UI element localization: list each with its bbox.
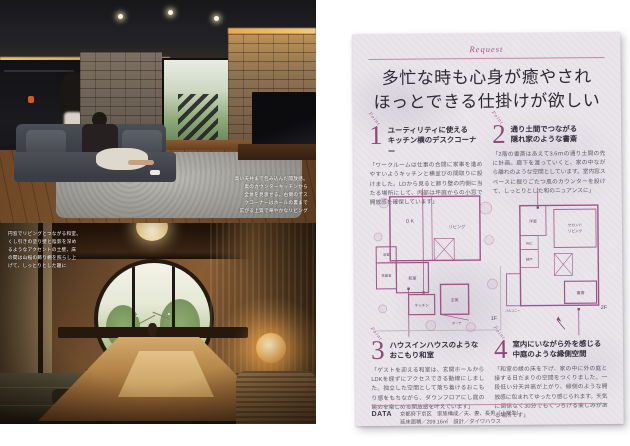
caption-line: 奥のカウンターキッチンから: [222, 183, 308, 191]
stair-window: [162, 58, 232, 150]
svg-text:洗面室: 洗面室: [381, 273, 392, 278]
svg-text:セカンド: セカンド: [568, 222, 583, 227]
floor-plans: ＤＫ リビング 和室 浴室 洗面室 キッチン 玄関 ポーチ 1F: [368, 187, 609, 337]
caption-line: の間は山桜の飾り棚を照らし上: [8, 254, 110, 262]
caption-line: 広がる上質で華やかなリビング: [222, 207, 308, 215]
seated-person-skirt: [96, 148, 148, 170]
data-details: 京都府下京区 家族構成／夫、妻、長男（小学生） 延床面積／209.16㎡ 設計／…: [400, 410, 522, 428]
caption-line: るようなアクセントの土壁、床: [8, 246, 110, 254]
caption-line: 全体を見渡せる。右側のデス: [222, 191, 308, 199]
request-page: Request 多忙な時も心身が癒やされ ほっとできる仕掛けが欲しい Point…: [352, 32, 623, 426]
tv-board: [238, 144, 316, 160]
magazine-spread: 高い天井まで包み込んだ開放感。 奥のカウンターキッチンから 全体を見渡せる。右側…: [0, 0, 630, 446]
caption-line: げて、しっとりとした趣に: [8, 262, 110, 270]
photo-caption-top: 高い天井まで包み込んだ開放感。 奥のカウンターキッチンから 全体を見渡せる。右側…: [222, 175, 308, 215]
eyebrow-label: Request: [352, 43, 620, 55]
svg-text:バルコニー: バルコニー: [505, 309, 520, 313]
page-title: 多忙な時も心身が癒やされ ほっとできる仕掛けが欲しい: [353, 65, 621, 116]
sofa-cushion: [26, 130, 66, 154]
svg-text:WIC: WIC: [526, 242, 533, 246]
point-heading: 室内にいながら外を感じる 中庭のような縁側空間: [512, 337, 601, 360]
title-line-2: ほっとできる仕掛けが欲しい: [353, 89, 621, 115]
point-number: 3: [371, 339, 385, 362]
svg-text:キッチン: キッチン: [414, 303, 429, 308]
svg-text:玄関: 玄関: [451, 297, 459, 302]
title-line-1: 多忙な時も心身が癒やされ: [353, 65, 621, 91]
staircase-silhouette: [178, 94, 218, 144]
svg-text:リビング: リビング: [449, 223, 466, 230]
divider: [369, 57, 605, 60]
svg-text:納戸: 納戸: [526, 257, 533, 262]
svg-text:書斎: 書斎: [577, 289, 585, 295]
kitchen-shelf: [4, 70, 74, 72]
downlight-icon: [168, 10, 173, 15]
downlight-icon: [214, 16, 219, 21]
point-heading: ハウスインハウスのような おこもり和室: [389, 338, 478, 361]
data-section: DATA 京都府下京区 家族構成／夫、妻、長男（小学生） 延床面積／209.16…: [372, 409, 608, 428]
downlight-icon: [118, 14, 123, 19]
svg-text:ポーチ: ポーチ: [452, 320, 462, 325]
point-number: 2: [492, 123, 506, 146]
plan-2f: [506, 205, 599, 306]
seated-person-leg: [128, 160, 154, 165]
shoe: [150, 170, 160, 175]
caption-line: 高い天井まで包み込んだ開放感。: [222, 175, 308, 183]
compass-icon: [557, 316, 565, 329]
svg-text:ＤＫ: ＤＫ: [405, 219, 414, 224]
television: [252, 92, 316, 146]
svg-text:洋室: 洋室: [529, 218, 537, 224]
photo-caption-bottom: 円窓でリビングとつながる和室。 くし引きの塗り壁と陰影を深め るようなアクセント…: [8, 230, 110, 270]
kettle: [28, 96, 34, 103]
living-room-photo: 高い天井まで包み込んだ開放感。 奥のカウンターキッチンから 全体を見渡せる。右側…: [0, 0, 316, 223]
data-label: DATA: [372, 411, 393, 428]
point-number: 4: [494, 338, 508, 361]
tatami-room-photo: 円窓でリビングとつながる和室。 くし引きの塗り壁と陰影を深め るようなアクセント…: [0, 223, 316, 424]
svg-text:浴室: 浴室: [383, 252, 390, 257]
caption-line: クコーナーはホールの裏まで: [222, 199, 308, 207]
svg-text:2F: 2F: [601, 305, 608, 311]
sofa-seat: [14, 152, 176, 182]
site-boundary: [374, 266, 501, 331]
caption-line: 円窓でリビングとつながる和室。: [8, 230, 110, 238]
svg-text:1F: 1F: [491, 316, 498, 322]
point-number: 1: [369, 124, 383, 147]
data-line-2: 延床面積／209.16㎡ 設計／ダイワハウス: [400, 418, 522, 428]
svg-text:リビング: リビング: [568, 228, 583, 233]
point-body: 「ゲストを迎える和室は、玄関ホールからLDKを経ずにアクセスできる動線にしました…: [371, 366, 484, 413]
caption-line: くし引きの塗り壁と陰影を深め: [8, 238, 110, 246]
plan-1f: [376, 196, 481, 321]
point-heading: ユーティリティに使える キッチン横のデスクコーナー: [388, 123, 483, 157]
svg-text:和室: 和室: [408, 275, 416, 282]
point-heading: 通り土間でつながる 隠れ家のような書斎: [511, 122, 578, 145]
